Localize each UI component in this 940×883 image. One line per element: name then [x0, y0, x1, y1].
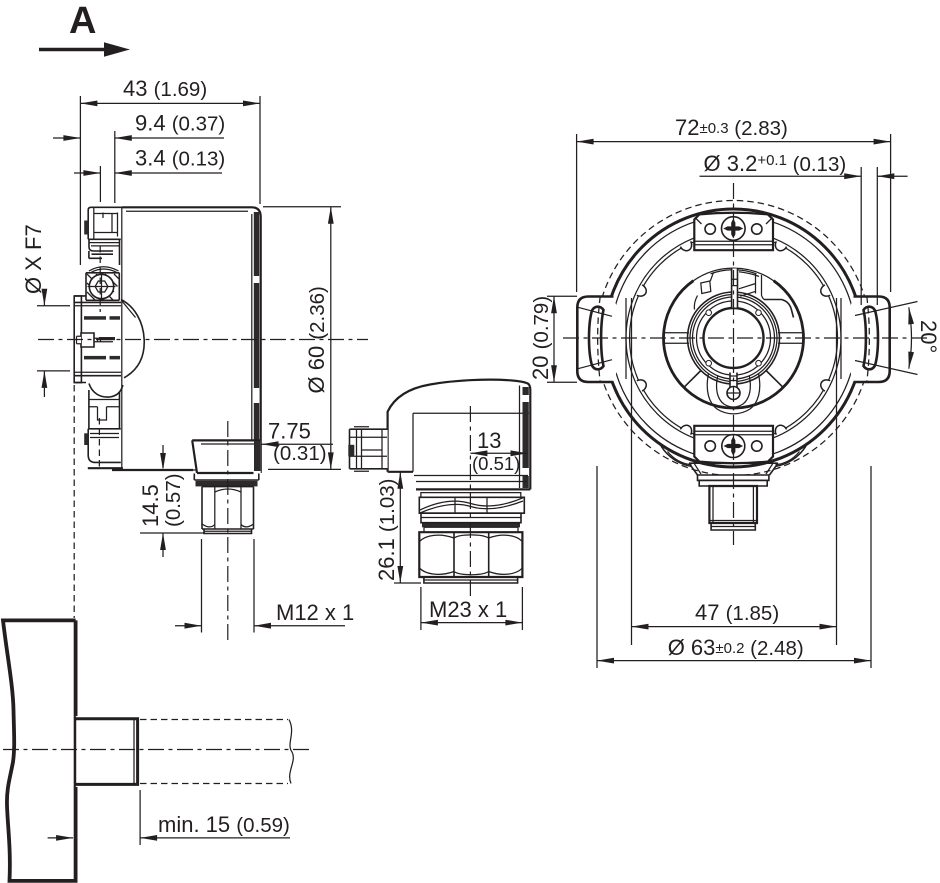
- svg-text:Ø X F7: Ø X F7: [21, 224, 46, 294]
- svg-text:14.5: 14.5: [138, 484, 163, 527]
- svg-text:3.4 (0.13): 3.4 (0.13): [135, 146, 225, 171]
- svg-text:47 (1.85): 47 (1.85): [695, 600, 779, 625]
- svg-text:(0.51): (0.51): [472, 453, 520, 474]
- svg-text:M12 x 1: M12 x 1: [276, 600, 354, 625]
- svg-text:min. 15 (0.59): min. 15 (0.59): [158, 812, 290, 837]
- svg-text:43 (1.69): 43 (1.69): [123, 76, 207, 101]
- svg-text:(0.31): (0.31): [273, 442, 327, 465]
- svg-text:Ø 3.2+0.1 (0.13): Ø 3.2+0.1 (0.13): [704, 151, 847, 176]
- svg-text:Ø 63±0.2 (2.48): Ø 63±0.2 (2.48): [668, 635, 804, 660]
- svg-text:20°: 20°: [916, 320, 940, 353]
- svg-text:26.1 (1.03): 26.1 (1.03): [374, 479, 399, 582]
- svg-text:Ø 60 (2.36): Ø 60 (2.36): [304, 286, 329, 393]
- svg-text:13: 13: [477, 428, 501, 453]
- svg-text:9.4 (0.37): 9.4 (0.37): [135, 111, 225, 136]
- svg-text:7.75: 7.75: [268, 419, 311, 444]
- svg-text:A: A: [69, 0, 96, 42]
- svg-text:M23 x 1: M23 x 1: [429, 597, 507, 622]
- svg-text:72±0.3 (2.83): 72±0.3 (2.83): [675, 115, 788, 140]
- svg-text:(0.57): (0.57): [162, 473, 185, 527]
- svg-text:20 (0.79): 20 (0.79): [528, 296, 553, 380]
